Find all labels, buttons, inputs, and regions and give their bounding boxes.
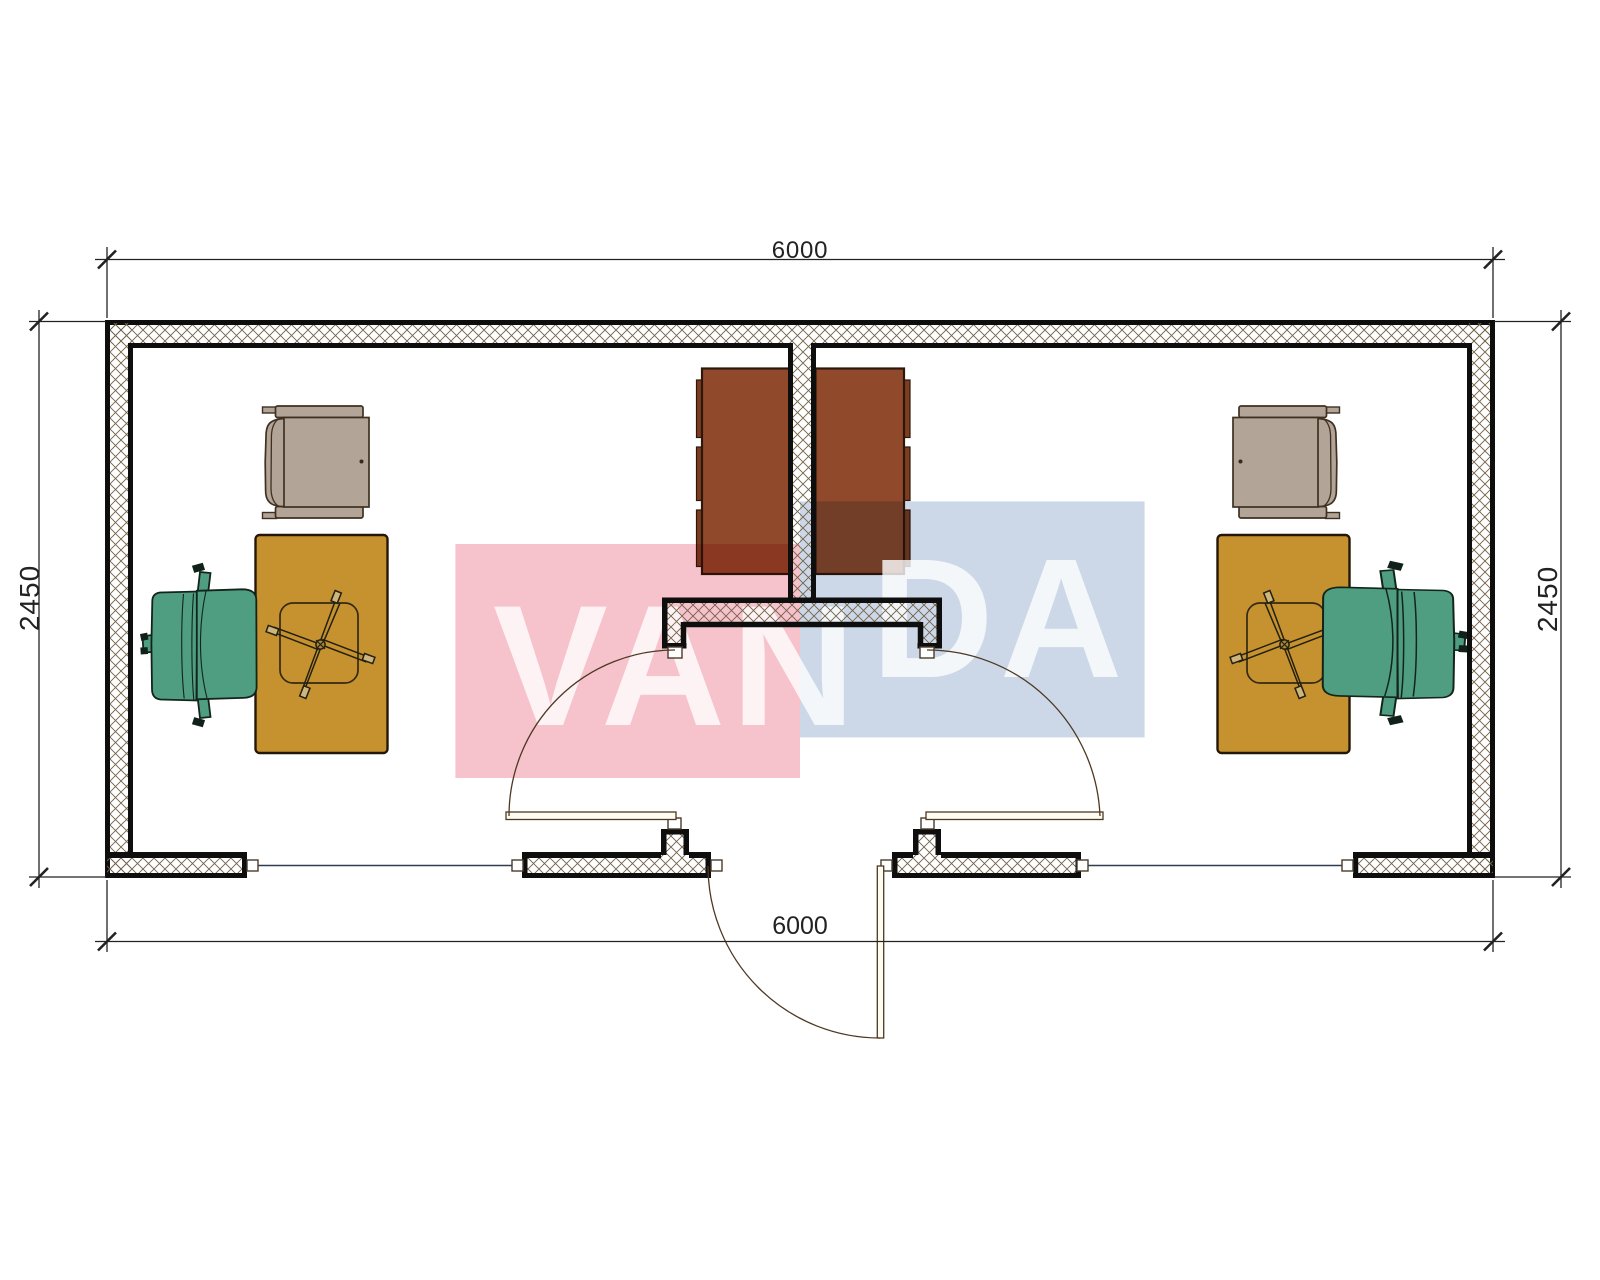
svg-text:2450: 2450 [14,565,45,631]
svg-text:6000: 6000 [772,237,829,264]
svg-text:2450: 2450 [1532,566,1563,632]
svg-text:6000: 6000 [772,912,828,940]
